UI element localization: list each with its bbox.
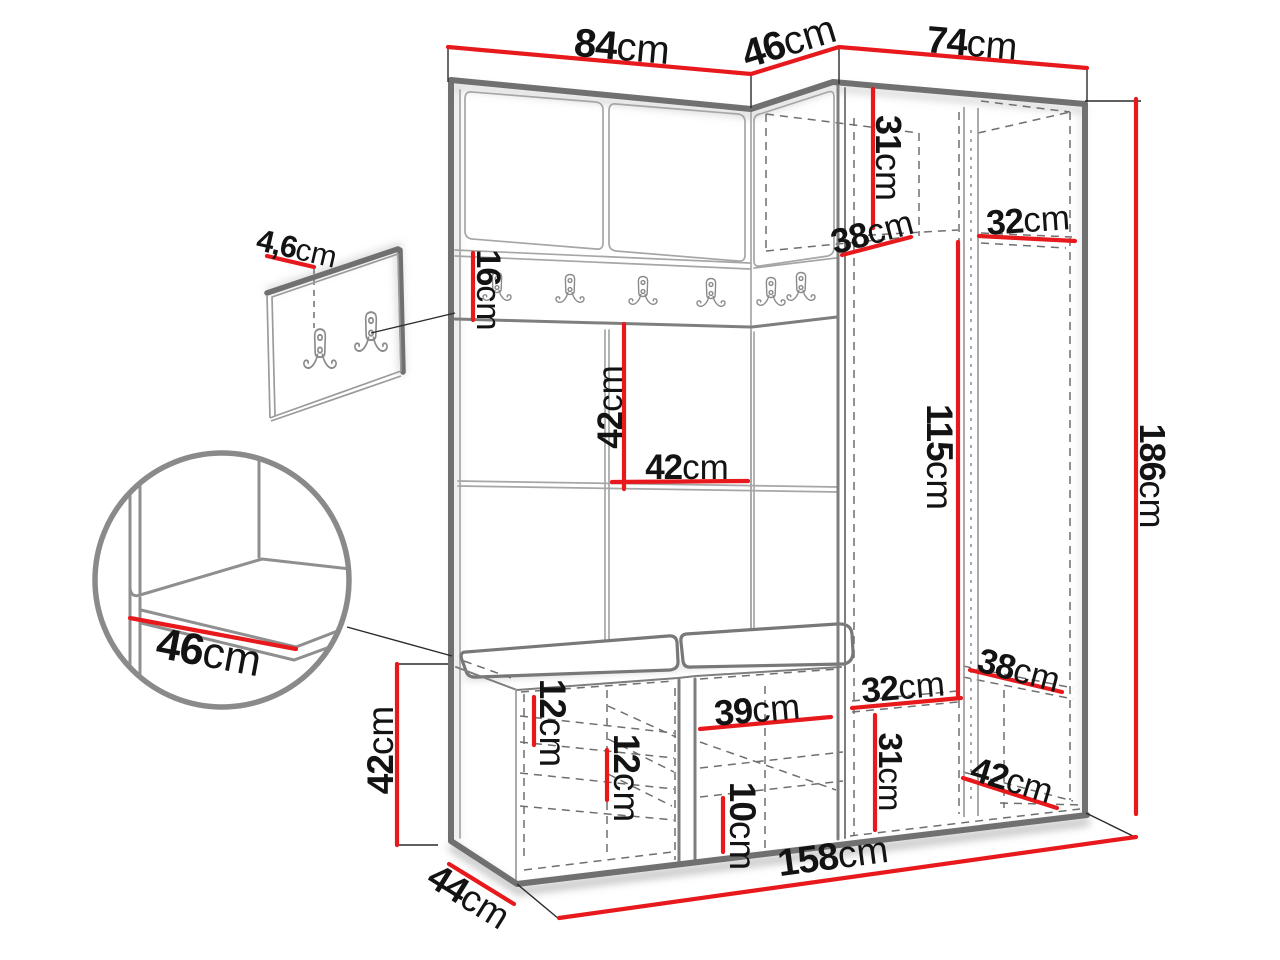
svg-text:32cm: 32cm: [985, 198, 1071, 243]
svg-text:46cm: 46cm: [737, 7, 842, 77]
svg-text:32cm: 32cm: [860, 664, 947, 710]
svg-text:84cm: 84cm: [572, 21, 671, 73]
svg-text:12cm: 12cm: [607, 734, 648, 822]
svg-text:31cm: 31cm: [873, 733, 910, 812]
svg-text:38cm: 38cm: [827, 202, 918, 261]
svg-text:42cm: 42cm: [645, 448, 729, 487]
svg-text:10cm: 10cm: [723, 782, 764, 870]
svg-text:115cm: 115cm: [920, 404, 961, 510]
svg-text:39cm: 39cm: [712, 685, 801, 733]
svg-text:42cm: 42cm: [966, 749, 1057, 811]
svg-text:12cm: 12cm: [533, 679, 574, 767]
svg-text:31cm: 31cm: [869, 115, 910, 201]
svg-text:42cm: 42cm: [360, 706, 401, 794]
svg-text:4,6cm: 4,6cm: [253, 222, 340, 274]
svg-text:42cm: 42cm: [591, 365, 630, 449]
svg-text:158cm: 158cm: [775, 829, 891, 885]
svg-text:16cm: 16cm: [469, 249, 507, 330]
svg-text:74cm: 74cm: [925, 19, 1019, 69]
svg-text:44cm: 44cm: [421, 855, 518, 937]
svg-text:38cm: 38cm: [974, 640, 1065, 699]
svg-text:186cm: 186cm: [1133, 423, 1174, 528]
